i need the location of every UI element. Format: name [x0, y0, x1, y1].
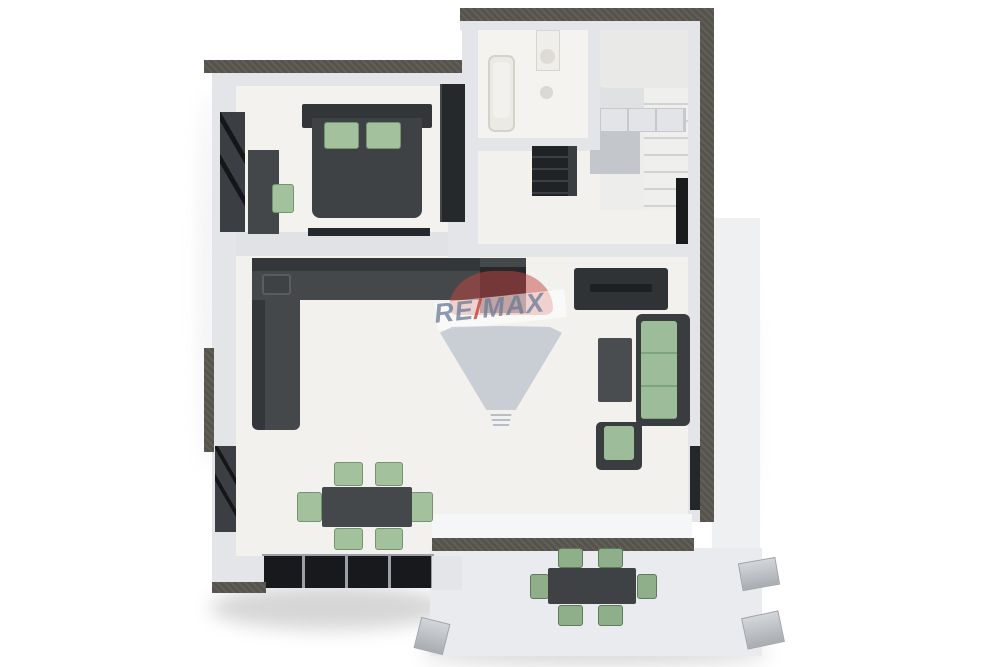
top-block-cap [460, 8, 714, 21]
terrace-chair-bottom-2 [598, 605, 623, 626]
bottom-left-stub-cap [212, 582, 266, 593]
hall-shelf-side [568, 146, 577, 196]
bedroom-window-sill [308, 228, 430, 236]
dining-chair-left [297, 492, 322, 522]
balloon-body [440, 326, 562, 410]
stairs-left-wall [588, 28, 600, 150]
terrace-wall [432, 514, 692, 540]
dining-table [322, 487, 412, 527]
armchair-seat [604, 426, 634, 460]
right-walkway [712, 218, 760, 556]
bed-pillow-right [366, 122, 401, 149]
winder-steps [600, 28, 688, 88]
right-wall-cap [700, 8, 714, 522]
dining-chair-top-2 [375, 462, 403, 486]
brand-re: RE [433, 295, 475, 329]
bedroom-top-cap [204, 60, 462, 73]
kitchen-sink [262, 274, 291, 295]
balloon-brand-text: RE/MAX [433, 287, 547, 329]
brand-max: MAX [480, 287, 546, 323]
tv-console-slot [590, 284, 652, 292]
stair-landing [600, 88, 644, 108]
hall-shelf-unit [532, 146, 572, 196]
dining-chair-bottom-2 [375, 528, 403, 550]
glazed-wall [262, 554, 434, 588]
top-block-wall [460, 20, 712, 30]
dining-window [215, 446, 236, 532]
terrace-chair-left [530, 574, 549, 599]
dining-chair-bottom-1 [334, 528, 363, 550]
dining-chair-top-1 [334, 462, 363, 486]
bathtub-inner [493, 62, 510, 118]
bedroom-window [220, 112, 245, 232]
bedroom-top-wall [212, 72, 464, 86]
terrace-chair-bottom-1 [558, 605, 583, 626]
sofa-cushions [641, 321, 677, 419]
coffee-table [598, 338, 632, 402]
left-wall-cap [204, 348, 214, 452]
bed-pillow-left [324, 122, 359, 149]
terrace-chair-top-1 [558, 548, 583, 568]
dining-chair-right [410, 492, 433, 522]
ceiling-lamp [540, 86, 553, 99]
balloon-basket [489, 414, 513, 429]
wardrobe [440, 84, 465, 222]
railing-post-3 [741, 610, 785, 649]
terrace-table [548, 568, 636, 604]
remax-watermark: RE/MAX [430, 265, 590, 435]
stair-cabinet-row [600, 108, 686, 132]
washbasin-bowl [540, 49, 555, 64]
terrace-chair-top-2 [598, 548, 623, 568]
terrace-chair-right [637, 574, 657, 599]
desk-chair [272, 184, 294, 213]
railing-post-2 [738, 557, 780, 591]
kitchen-counter-left [252, 300, 300, 430]
south-wall-corner [432, 556, 462, 590]
hall-living-divider [448, 244, 688, 257]
floor-plan-render: RE/MAX [0, 0, 1000, 667]
